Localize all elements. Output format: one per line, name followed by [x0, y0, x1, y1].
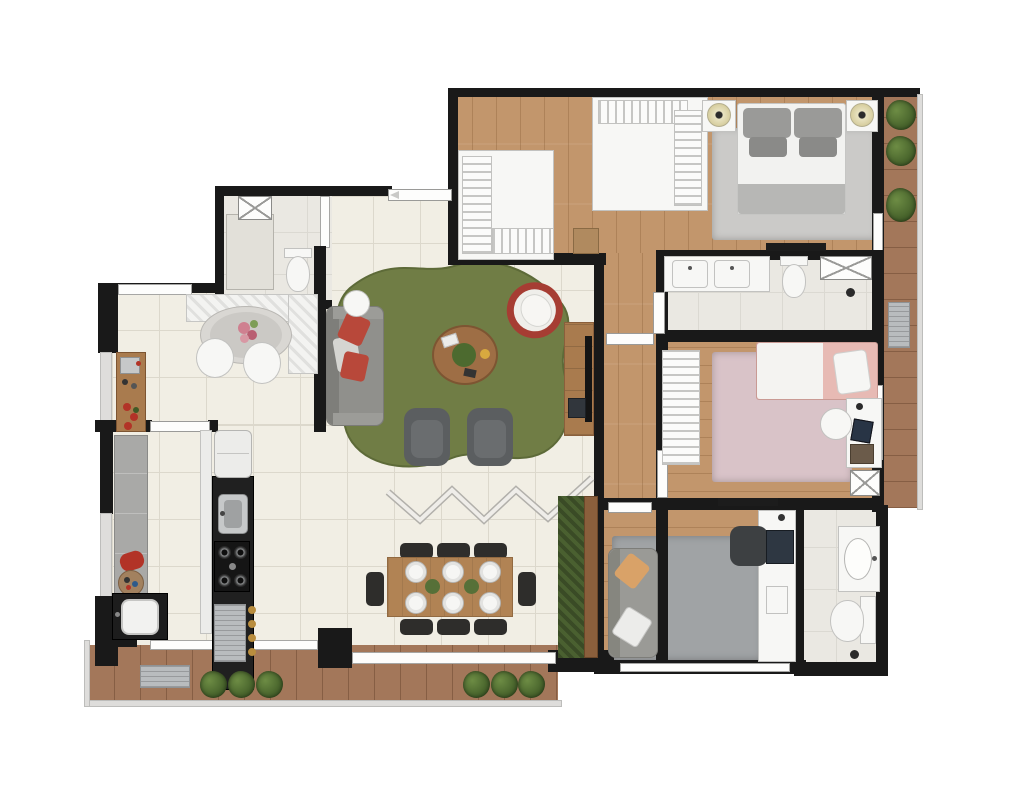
plant-icon [463, 671, 490, 698]
lamp-icon-left [707, 103, 731, 127]
railing-side-balcony [917, 94, 923, 510]
faucet-dot [872, 556, 877, 561]
blanket [738, 184, 845, 214]
powder-shower-stall [226, 214, 274, 290]
bedroom2-wardrobe-rack [662, 350, 700, 465]
bed-duvet [757, 343, 823, 399]
red-dot [136, 361, 141, 366]
vertical-garden-planter [558, 496, 586, 658]
plant-icon [886, 100, 916, 130]
dining-chair-end [518, 572, 536, 606]
cup-dot [122, 379, 128, 385]
bedroom2-chair [820, 408, 852, 440]
burner-icon [234, 546, 247, 559]
armchair-seat [411, 420, 443, 458]
tablet [850, 418, 874, 443]
window-office [620, 663, 790, 672]
cooktop [214, 541, 250, 592]
place-setting [479, 561, 501, 583]
place-setting [442, 592, 464, 614]
bedroom2-bed [756, 342, 878, 400]
media-device [568, 398, 586, 418]
red-flower [124, 422, 132, 430]
dish-rack-module [214, 604, 246, 662]
window-nook-top [118, 284, 192, 295]
bottle-dot [248, 634, 256, 642]
master-tv-panel [766, 243, 826, 251]
place-setting [405, 592, 427, 614]
red-flower [130, 413, 138, 421]
office-door [608, 502, 652, 513]
toilet-icon-bath2 [830, 600, 864, 642]
hanger-rack-icon-1 [462, 156, 492, 254]
place-setting [442, 561, 464, 583]
plant-icon [228, 671, 255, 698]
bottle-dot [248, 606, 256, 614]
decor-dot [132, 581, 138, 587]
dining-chair [437, 619, 470, 635]
living-sofa [326, 306, 384, 426]
table-tray-green [452, 343, 476, 367]
master-bath-door [653, 292, 665, 334]
glass-wall-left-2 [100, 513, 112, 599]
kitchen-sink [218, 494, 248, 534]
railing-terrace-bottom [84, 700, 562, 707]
decor-dot [126, 585, 131, 590]
plant-icon [256, 671, 283, 698]
wall-left-mid [100, 430, 113, 514]
wall-bath1-bottom [656, 330, 884, 342]
coffee-table [432, 325, 498, 385]
utility-sink [121, 599, 159, 635]
plant-icon [491, 671, 518, 698]
sofa-arm-bottom [333, 413, 383, 425]
sink-basin [224, 500, 242, 528]
plant-icon [886, 188, 916, 222]
side-table [343, 290, 370, 317]
red-flower [123, 403, 131, 411]
bedroom2-tv-panel [718, 498, 778, 506]
coffee-sideboard [116, 352, 146, 432]
toilet-icon-bath1 [782, 264, 806, 298]
ac-unit-side-balcony [888, 302, 910, 348]
entry-arrow-icon [390, 191, 399, 199]
window-master-balcony [873, 213, 883, 252]
floor-plan-canvas [0, 0, 1024, 807]
suite-hall-door [606, 333, 654, 345]
pen-holder-dot [778, 514, 785, 521]
burner-icon [218, 546, 231, 559]
faucet-dot [730, 266, 734, 270]
centerpiece-green [425, 579, 440, 594]
pillow-red-2 [339, 351, 369, 383]
table-remote [463, 368, 476, 378]
nook-chair-2 [243, 342, 281, 384]
faucet-dot [115, 612, 120, 617]
hanger-rack-icon-2 [492, 228, 554, 254]
green-leaf [133, 407, 139, 413]
wall-closet-left [448, 97, 458, 265]
armchair-2 [467, 408, 513, 466]
fridge-door-line [217, 453, 249, 454]
sink-icon-1 [672, 260, 708, 288]
railing-terrace-left [84, 640, 90, 707]
x-cabinet-icon-shower [820, 256, 872, 280]
dining-chair [400, 619, 433, 635]
partition-kitchen [200, 430, 212, 634]
bottle-dot [248, 648, 256, 656]
sink-icon-2 [714, 260, 750, 288]
armchair-seat [474, 420, 506, 458]
window-dining-balcony [352, 652, 556, 664]
utility-sink-unit [112, 593, 168, 640]
cup-dot [131, 383, 137, 389]
burner-icon [218, 574, 231, 587]
table-bowl-yellow [480, 349, 490, 359]
wall-top-master [448, 88, 920, 97]
book-stack [850, 444, 874, 464]
centerpiece-green [464, 579, 479, 594]
wall-entry-top [222, 186, 392, 196]
desk-lamp-dot [856, 403, 863, 410]
pillow [794, 108, 842, 138]
office-chair [730, 526, 768, 566]
flower-centerpiece [240, 334, 249, 343]
lamp-icon-right [850, 103, 874, 127]
dining-chair [474, 619, 507, 635]
nook-chair-1 [196, 338, 234, 378]
place-setting [479, 592, 501, 614]
master-bed [737, 103, 846, 215]
pillow-small [749, 137, 787, 157]
phone-dock [766, 586, 788, 614]
armchair-1 [404, 408, 450, 466]
drain-icon-bath2 [850, 650, 859, 659]
closet-dresser [573, 228, 599, 254]
place-setting [405, 561, 427, 583]
refrigerator [214, 430, 252, 478]
ac-unit-terrace [140, 665, 190, 688]
toilet-icon-powder [286, 256, 310, 292]
sink-icon-bath2 [844, 538, 872, 580]
bottle-dot [248, 620, 256, 628]
wall-bath2-bottom [794, 662, 888, 676]
plant-icon [886, 136, 916, 166]
pillow-white [832, 349, 872, 395]
dining-chair-end [366, 572, 384, 606]
hanger-rack-icon-4 [674, 110, 702, 206]
x-cabinet-icon-bedroom2 [850, 470, 880, 496]
pillow [743, 108, 791, 138]
pier-kitchen-balcony [318, 628, 352, 668]
faucet-dot [688, 266, 692, 270]
faucet-dot [220, 511, 225, 516]
office-sofa [608, 548, 658, 658]
decor-dot [124, 577, 130, 583]
burner-icon [234, 574, 247, 587]
planter-wood-edge [584, 496, 598, 658]
television [585, 336, 592, 422]
pillar-left-1 [98, 283, 118, 353]
cooktop-knob [229, 563, 236, 570]
plant-icon [200, 671, 227, 698]
pillow-small [799, 137, 837, 157]
wall-bath1-right [872, 250, 884, 342]
window-powder-right [320, 196, 330, 248]
laptop [766, 530, 794, 564]
nook-bench-right [288, 294, 318, 374]
plant-icon [518, 671, 545, 698]
drain-icon-bath1 [846, 288, 855, 297]
flower-leaf [250, 320, 258, 328]
x-cabinet-icon-powder [238, 196, 272, 220]
